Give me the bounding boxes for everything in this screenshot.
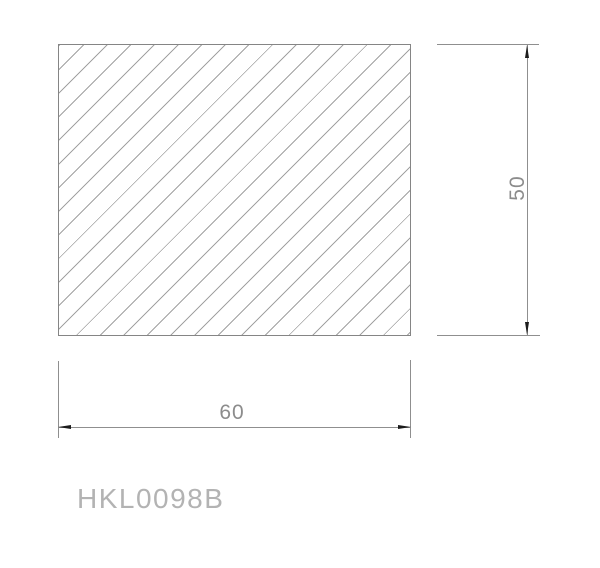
hatched-part-rectangle: [58, 44, 411, 336]
height-dimension-value: 50: [507, 168, 529, 208]
width-dimension-value: 60: [212, 402, 252, 424]
extension-line-top: [437, 44, 539, 45]
part-number-label: HKL0098B: [77, 483, 224, 515]
arrowhead-down-icon: [525, 322, 529, 335]
arrowhead-left-icon: [58, 425, 71, 429]
arrowhead-up-icon: [525, 45, 529, 58]
extension-line-bottom: [437, 335, 540, 336]
cad-drawing-canvas: 50 60 HKL0098B: [0, 0, 600, 568]
width-dimension-line: [58, 427, 411, 428]
arrowhead-right-icon: [398, 425, 411, 429]
